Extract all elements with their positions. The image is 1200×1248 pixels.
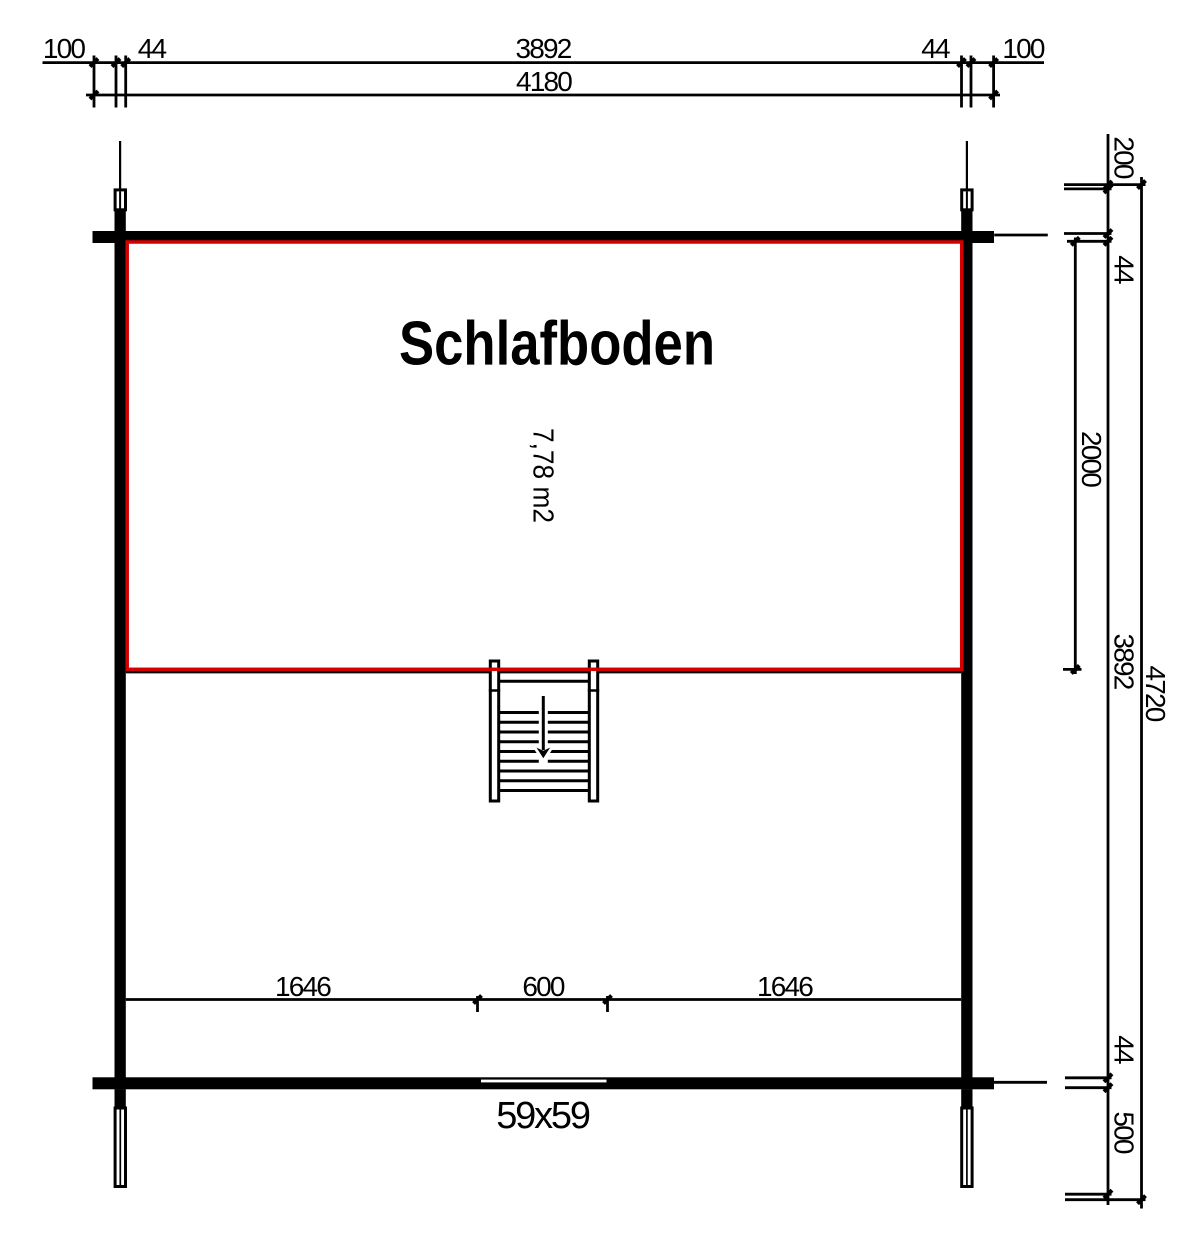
svg-text:4180: 4180	[516, 66, 572, 97]
svg-text:44: 44	[921, 33, 950, 64]
svg-text:Schlafboden: Schlafboden	[399, 310, 715, 379]
svg-text:2000: 2000	[1076, 431, 1107, 487]
svg-text:100: 100	[43, 33, 86, 64]
svg-text:59x59: 59x59	[496, 1095, 590, 1137]
svg-text:7,78 m2: 7,78 m2	[527, 428, 559, 523]
svg-text:3892: 3892	[515, 33, 571, 64]
svg-text:1646: 1646	[275, 971, 331, 1002]
svg-text:1646: 1646	[757, 971, 813, 1002]
svg-text:44: 44	[1109, 255, 1140, 284]
svg-text:44: 44	[1109, 1035, 1140, 1064]
svg-text:4720: 4720	[1140, 665, 1171, 721]
svg-text:500: 500	[1109, 1111, 1140, 1154]
svg-text:600: 600	[522, 971, 565, 1002]
svg-text:3892: 3892	[1109, 633, 1140, 689]
svg-text:100: 100	[1002, 33, 1045, 64]
svg-text:200: 200	[1109, 136, 1140, 179]
svg-text:44: 44	[138, 33, 167, 64]
